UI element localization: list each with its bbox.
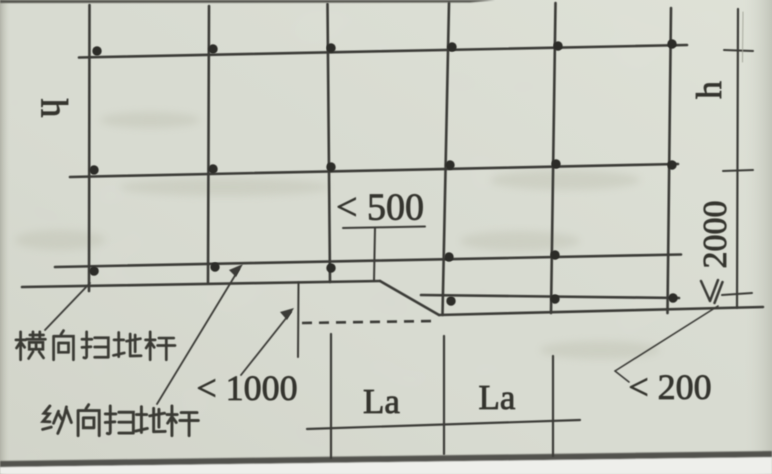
svg-text:2000: 2000: [697, 201, 734, 269]
svg-text:La: La: [479, 378, 516, 417]
svg-text:h: h: [689, 81, 729, 99]
svg-text:La: La: [363, 382, 400, 421]
svg-text:< 1000: < 1000: [196, 368, 297, 408]
svg-text:h: h: [33, 99, 75, 118]
svg-text:< 200: < 200: [628, 367, 711, 407]
svg-text:< 500: < 500: [336, 187, 424, 229]
